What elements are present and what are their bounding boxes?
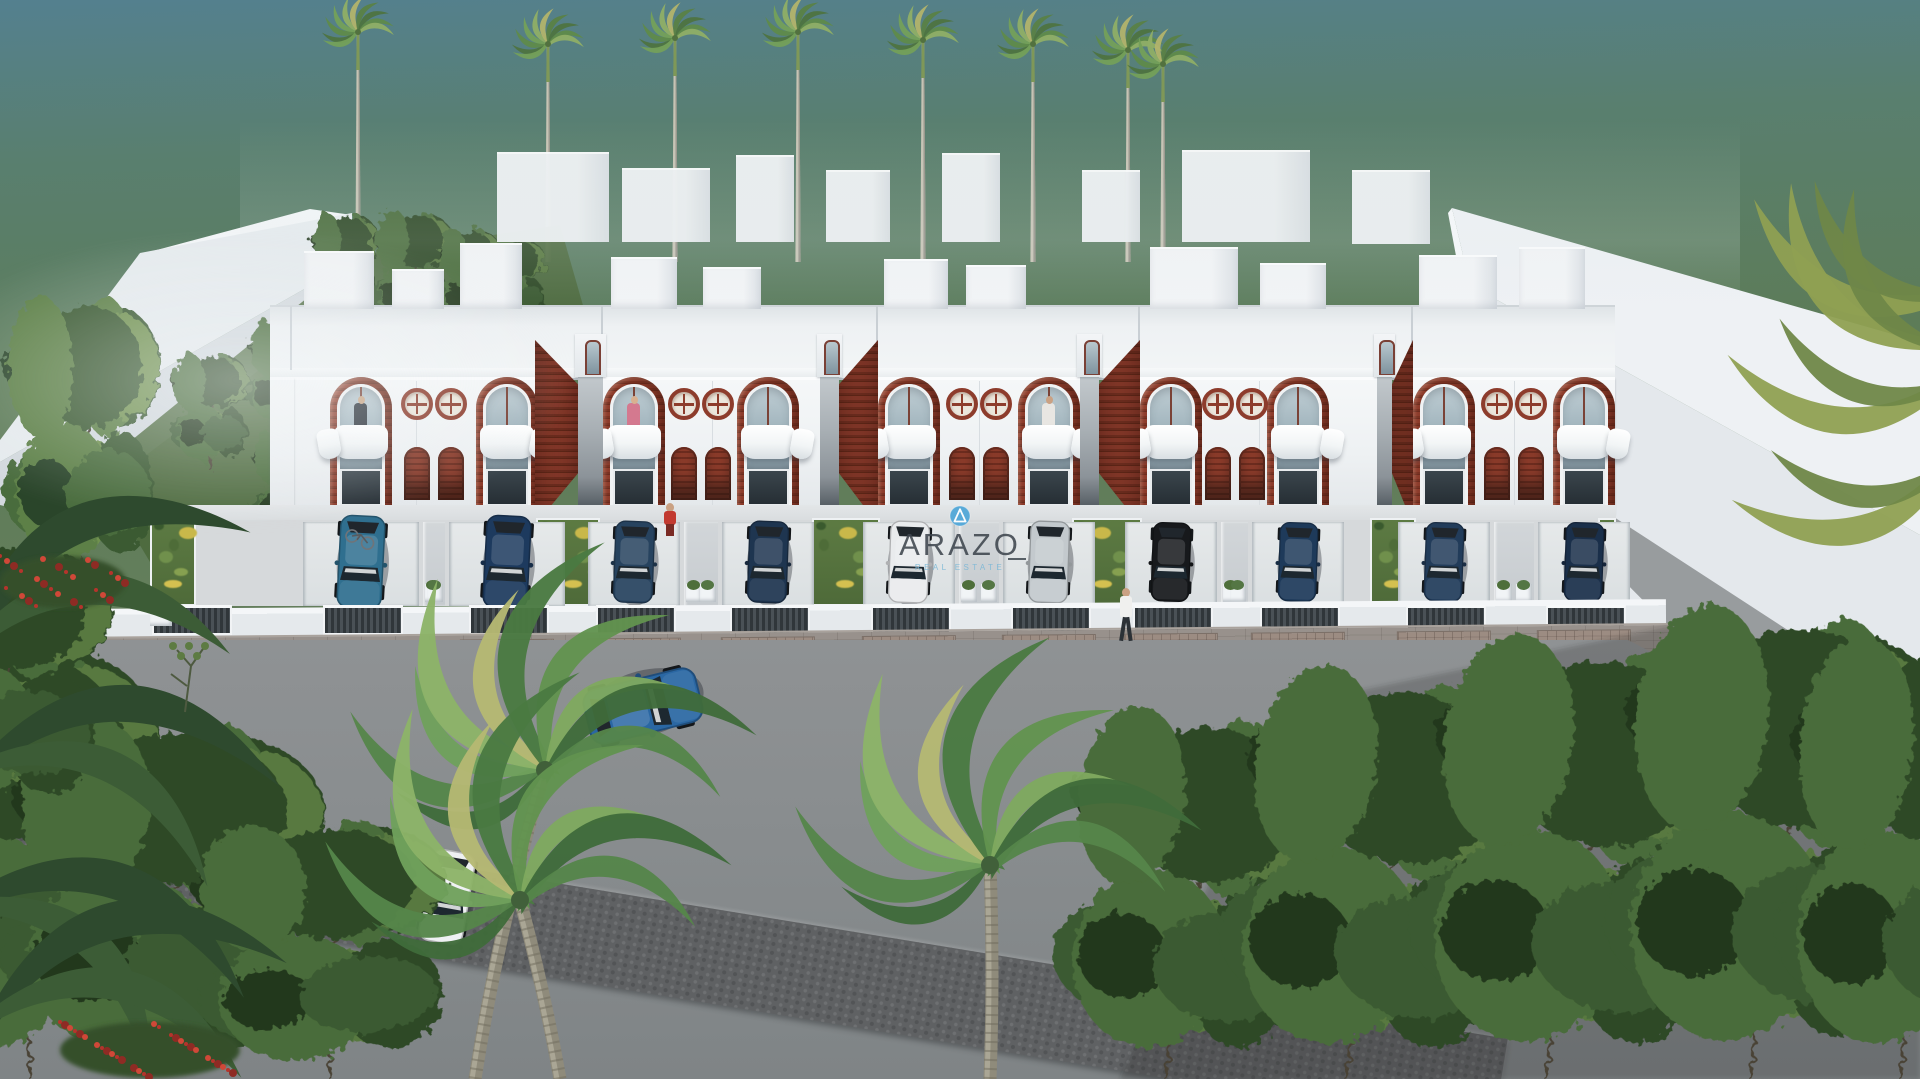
pedestrian-torso: [664, 511, 676, 525]
pedestrian-leg: [1125, 617, 1132, 641]
watermark: ARAZO REAL ESTATE: [860, 505, 1060, 572]
pedestrian: [1117, 588, 1135, 646]
watermark-brand: ARAZO: [899, 529, 1021, 560]
architectural-rendering: ARAZO REAL ESTATE: [0, 0, 1920, 1079]
pedestrian: [661, 503, 679, 561]
pedestrian-torso: [1120, 596, 1132, 618]
watermark-underline: [1008, 558, 1026, 560]
arazo-logo-icon: [949, 505, 971, 529]
pedestrian-legs: [666, 524, 674, 536]
watermark-tagline: REAL ESTATE: [915, 563, 1005, 572]
